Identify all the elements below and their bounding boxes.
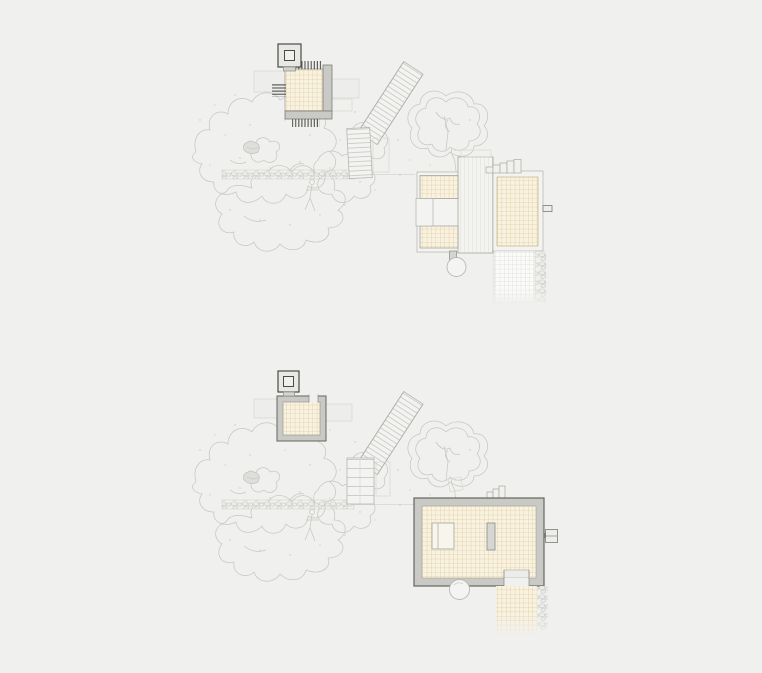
louver-comb-bottom — [292, 119, 320, 127]
roof-tile-right — [497, 177, 538, 246]
stair-lower-frame — [347, 458, 374, 504]
tree-circle — [447, 258, 466, 277]
roof-spout — [543, 206, 552, 212]
roof-notch — [416, 199, 433, 227]
drawing-canvas — [0, 0, 762, 673]
roof-band-right — [323, 65, 332, 111]
terrace-fade — [488, 288, 552, 306]
door-threshold — [504, 570, 529, 578]
wall-fixture — [544, 530, 558, 543]
side-wing-right — [326, 404, 352, 421]
side-wing-right — [331, 79, 359, 98]
site-plan-drawing — [0, 0, 762, 673]
roof-tile-left-top — [420, 176, 458, 199]
pavilion-roof-grid — [285, 69, 323, 111]
bed-block — [432, 523, 454, 549]
stair-lower-flight — [347, 127, 373, 178]
pavilion-floor — [283, 402, 320, 435]
roof-tile-left-bottom — [420, 226, 458, 248]
louver-comb-left — [272, 84, 286, 97]
chimney-stem — [284, 392, 295, 396]
roof-band-bottom — [285, 111, 332, 119]
partition-wall — [487, 523, 495, 550]
terrace-fade — [490, 614, 554, 638]
chimney-flue — [284, 377, 294, 387]
chimney-stem — [284, 67, 296, 71]
chimney-flue — [285, 51, 295, 61]
door-opening — [309, 395, 318, 403]
